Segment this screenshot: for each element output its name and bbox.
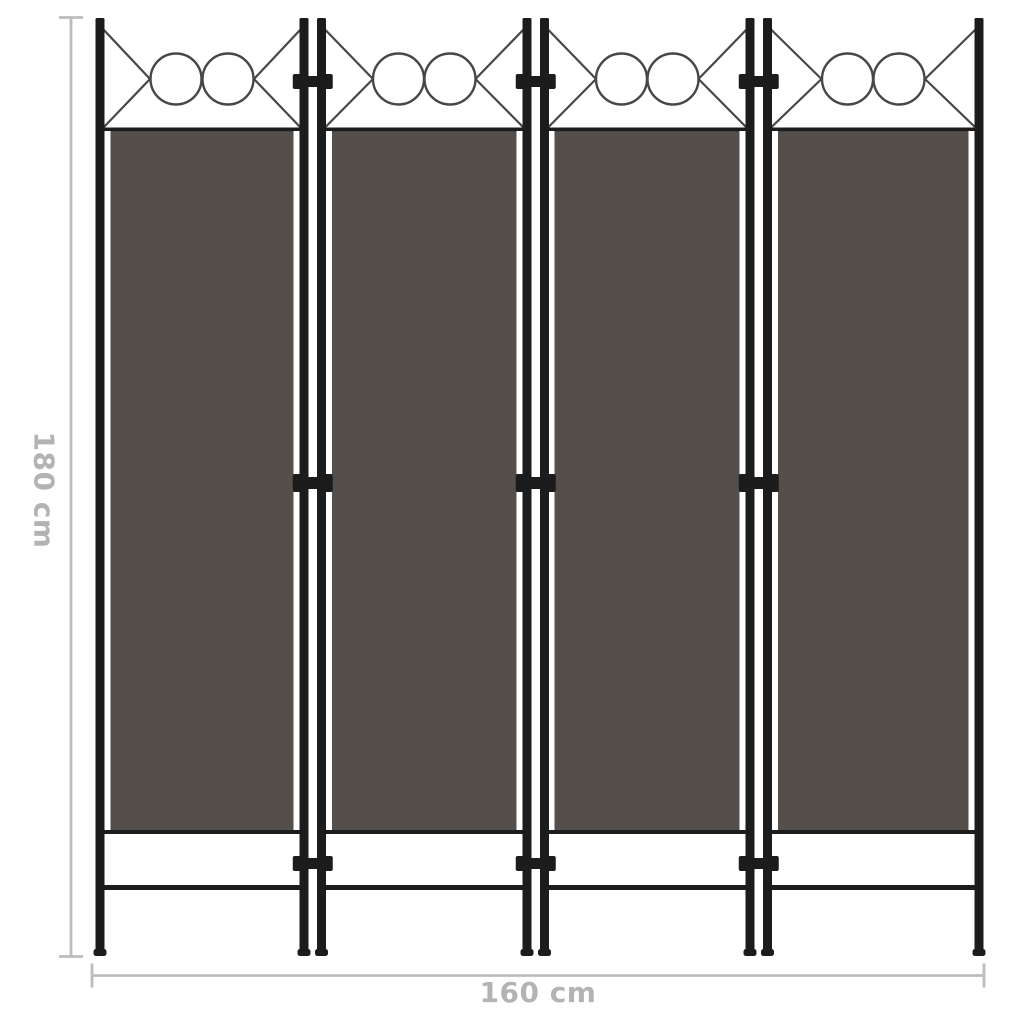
- hinge-clamp-tab: [293, 74, 302, 89]
- hinge-clamp-tab: [770, 856, 779, 871]
- decor-circle: [596, 54, 647, 105]
- hinge-clamp-tab: [324, 474, 333, 492]
- pole-foot: [761, 949, 774, 956]
- hinge-clamp-tab: [324, 856, 333, 871]
- decor-diagonal: [548, 29, 597, 79]
- decor-diagonal: [325, 29, 374, 79]
- hinge-clamp-tab: [770, 74, 779, 89]
- pole: [975, 18, 984, 956]
- panel-bottom-rail: [322, 830, 528, 834]
- panel: [768, 29, 980, 890]
- decor-diagonal: [103, 29, 150, 79]
- panel: [545, 29, 751, 890]
- room-divider-illustration: 180 cm 160 cm: [0, 0, 1024, 1024]
- decor-circle: [822, 54, 873, 105]
- hinge-clamp-tab: [516, 856, 525, 871]
- pole-foot: [315, 949, 328, 956]
- panel-bottom-rail: [768, 830, 980, 834]
- panel-crossbar: [322, 885, 528, 890]
- decor-diagonal: [699, 29, 748, 79]
- decor-diagonal: [254, 29, 301, 79]
- panel-fabric: [778, 129, 969, 832]
- hinge-clamp-tab: [739, 856, 748, 871]
- panel-bottom-rail: [545, 830, 751, 834]
- hinge-clamp-tab: [547, 856, 556, 871]
- decor-circle: [648, 54, 699, 105]
- product-diagram-canvas: 180 cm 160 cm: [0, 0, 1024, 1024]
- hinge-clamp-tab: [739, 474, 748, 492]
- panel-fabric: [332, 129, 517, 832]
- hinge-clamp-tab: [324, 74, 333, 89]
- decor-circle: [203, 54, 254, 105]
- pole-foot: [973, 949, 986, 956]
- pole: [96, 18, 105, 956]
- panel-top-rail: [322, 128, 528, 132]
- decor-circle: [425, 54, 476, 105]
- panel-top-rail: [100, 128, 304, 132]
- hinge-clamp-tab: [739, 74, 748, 89]
- height-dimension-label: 180 cm: [28, 432, 61, 549]
- panel-bottom-rail: [100, 830, 304, 834]
- decor-diagonal: [925, 29, 976, 79]
- decor-circle: [373, 54, 424, 105]
- panel-crossbar: [545, 885, 751, 890]
- hinge-clamp-tab: [547, 74, 556, 89]
- pole-foot: [521, 949, 534, 956]
- hinge-clamp-tab: [547, 474, 556, 492]
- panel: [100, 29, 304, 890]
- decor-diagonal: [103, 79, 150, 128]
- decor-circle: [151, 54, 202, 105]
- pole-foot: [744, 949, 757, 956]
- panel-fabric: [111, 129, 294, 832]
- pole-foot: [298, 949, 311, 956]
- decor-diagonal: [476, 29, 525, 79]
- pole-foot: [538, 949, 551, 956]
- decor-diagonal: [925, 79, 976, 128]
- hinge-clamp-tab: [770, 474, 779, 492]
- panel-fabric: [555, 129, 740, 832]
- panel-top-rail: [768, 128, 980, 132]
- hinge-clamp-tab: [516, 74, 525, 89]
- hinge-clamp-tab: [293, 474, 302, 492]
- hinge-clamp-tab: [293, 856, 302, 871]
- panel-top-rail: [545, 128, 751, 132]
- panel-crossbar: [100, 885, 304, 890]
- width-dimension: 160 cm: [92, 964, 984, 1010]
- panel-crossbar: [768, 885, 980, 890]
- panel: [322, 29, 528, 890]
- width-dimension-label: 160 cm: [480, 976, 597, 1009]
- decor-circle: [874, 54, 925, 105]
- pole-foot: [94, 949, 107, 956]
- hinge-clamp-tab: [516, 474, 525, 492]
- height-dimension: 180 cm: [28, 18, 84, 957]
- decor-diagonal: [771, 29, 822, 79]
